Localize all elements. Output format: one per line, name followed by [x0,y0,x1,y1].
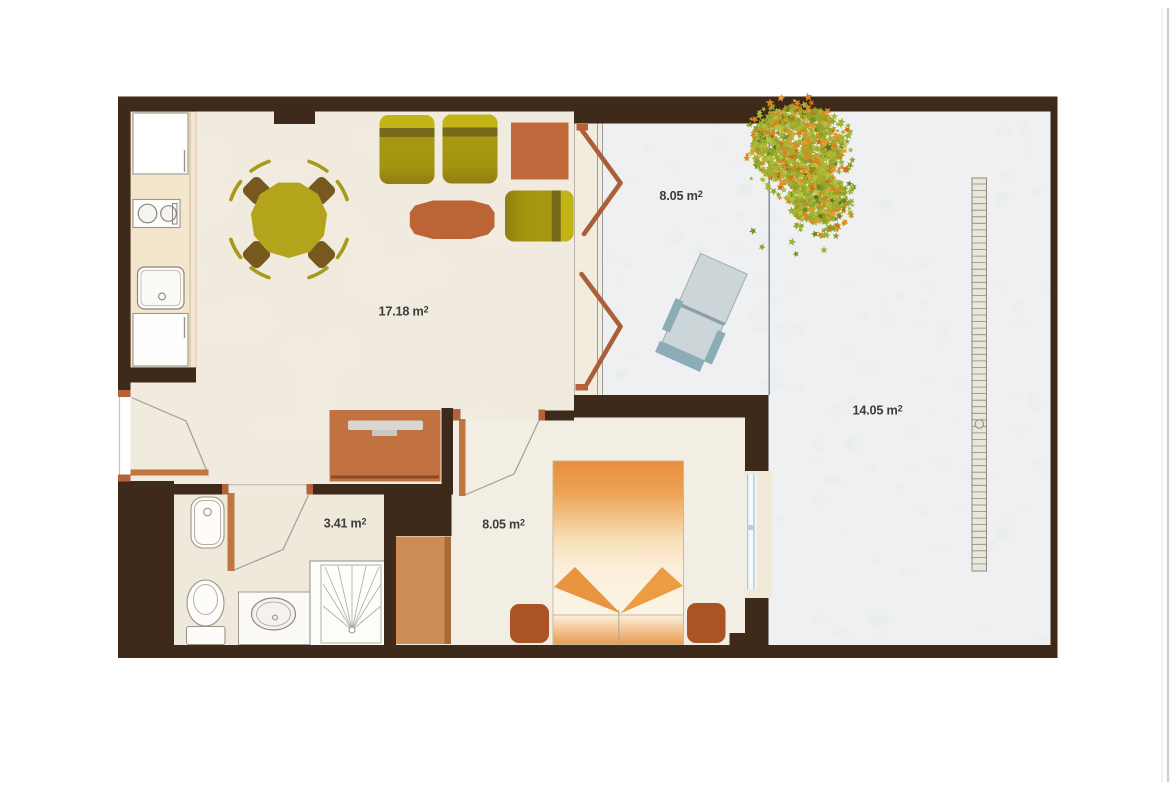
svg-text:8.05 m2: 8.05 m2 [659,189,702,203]
svg-text:3.41 m2: 3.41 m2 [324,516,367,530]
svg-text:17.18 m2: 17.18 m2 [378,304,428,318]
svg-text:8.05 m2: 8.05 m2 [482,517,525,531]
svg-text:14.05 m2: 14.05 m2 [852,403,902,417]
